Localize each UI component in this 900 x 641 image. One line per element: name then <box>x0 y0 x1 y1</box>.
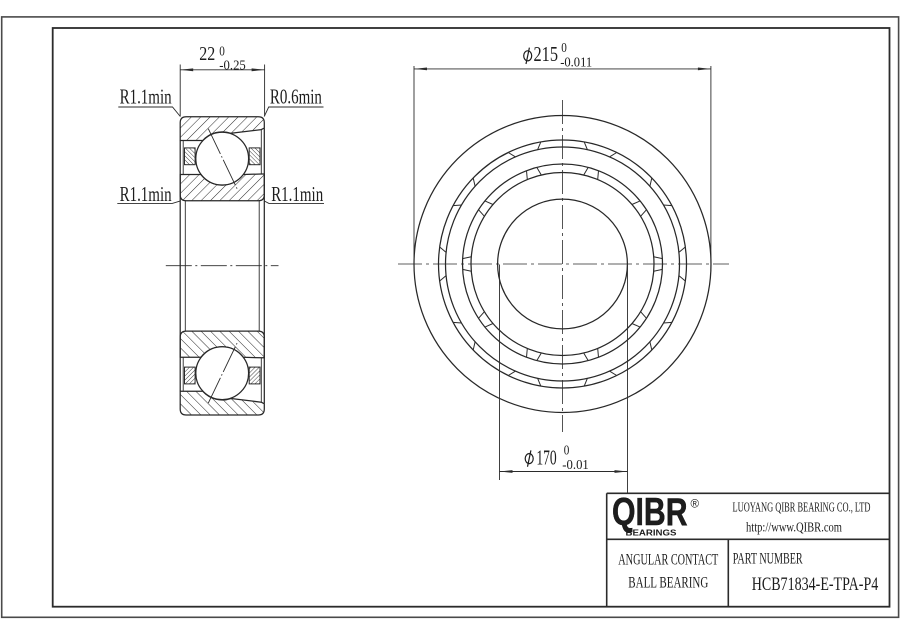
svg-text:R1.1min: R1.1min <box>271 182 323 206</box>
svg-text:ANGULAR CONTACT: ANGULAR CONTACT <box>618 551 718 568</box>
svg-text:HCB71834-E-TPA-P4: HCB71834-E-TPA-P4 <box>752 574 879 595</box>
svg-text:22: 22 <box>199 43 215 65</box>
svg-text:0: 0 <box>561 41 567 56</box>
svg-text:BEARINGS: BEARINGS <box>626 529 678 538</box>
svg-text:-0.011: -0.011 <box>560 56 592 71</box>
svg-text:-0.25: -0.25 <box>219 59 246 74</box>
svg-text:PART NUMBER: PART NUMBER <box>733 550 803 567</box>
svg-text:0: 0 <box>219 44 225 59</box>
svg-text:R0.6min: R0.6min <box>270 85 322 109</box>
svg-text:http://www.QIBR.com: http://www.QIBR.com <box>746 520 842 535</box>
svg-text:®: ® <box>691 499 700 511</box>
svg-text:R1.1min: R1.1min <box>120 85 172 109</box>
svg-text:-0.01: -0.01 <box>562 458 589 473</box>
svg-text:0: 0 <box>564 444 570 459</box>
svg-text:BALL BEARING: BALL BEARING <box>628 575 708 592</box>
svg-text:LUOYANG QIBR BEARING CO., LTD: LUOYANG QIBR BEARING CO., LTD <box>733 500 871 515</box>
svg-text:R1.1min: R1.1min <box>120 182 172 206</box>
svg-text:215: 215 <box>534 42 559 66</box>
svg-text:170: 170 <box>536 446 556 470</box>
